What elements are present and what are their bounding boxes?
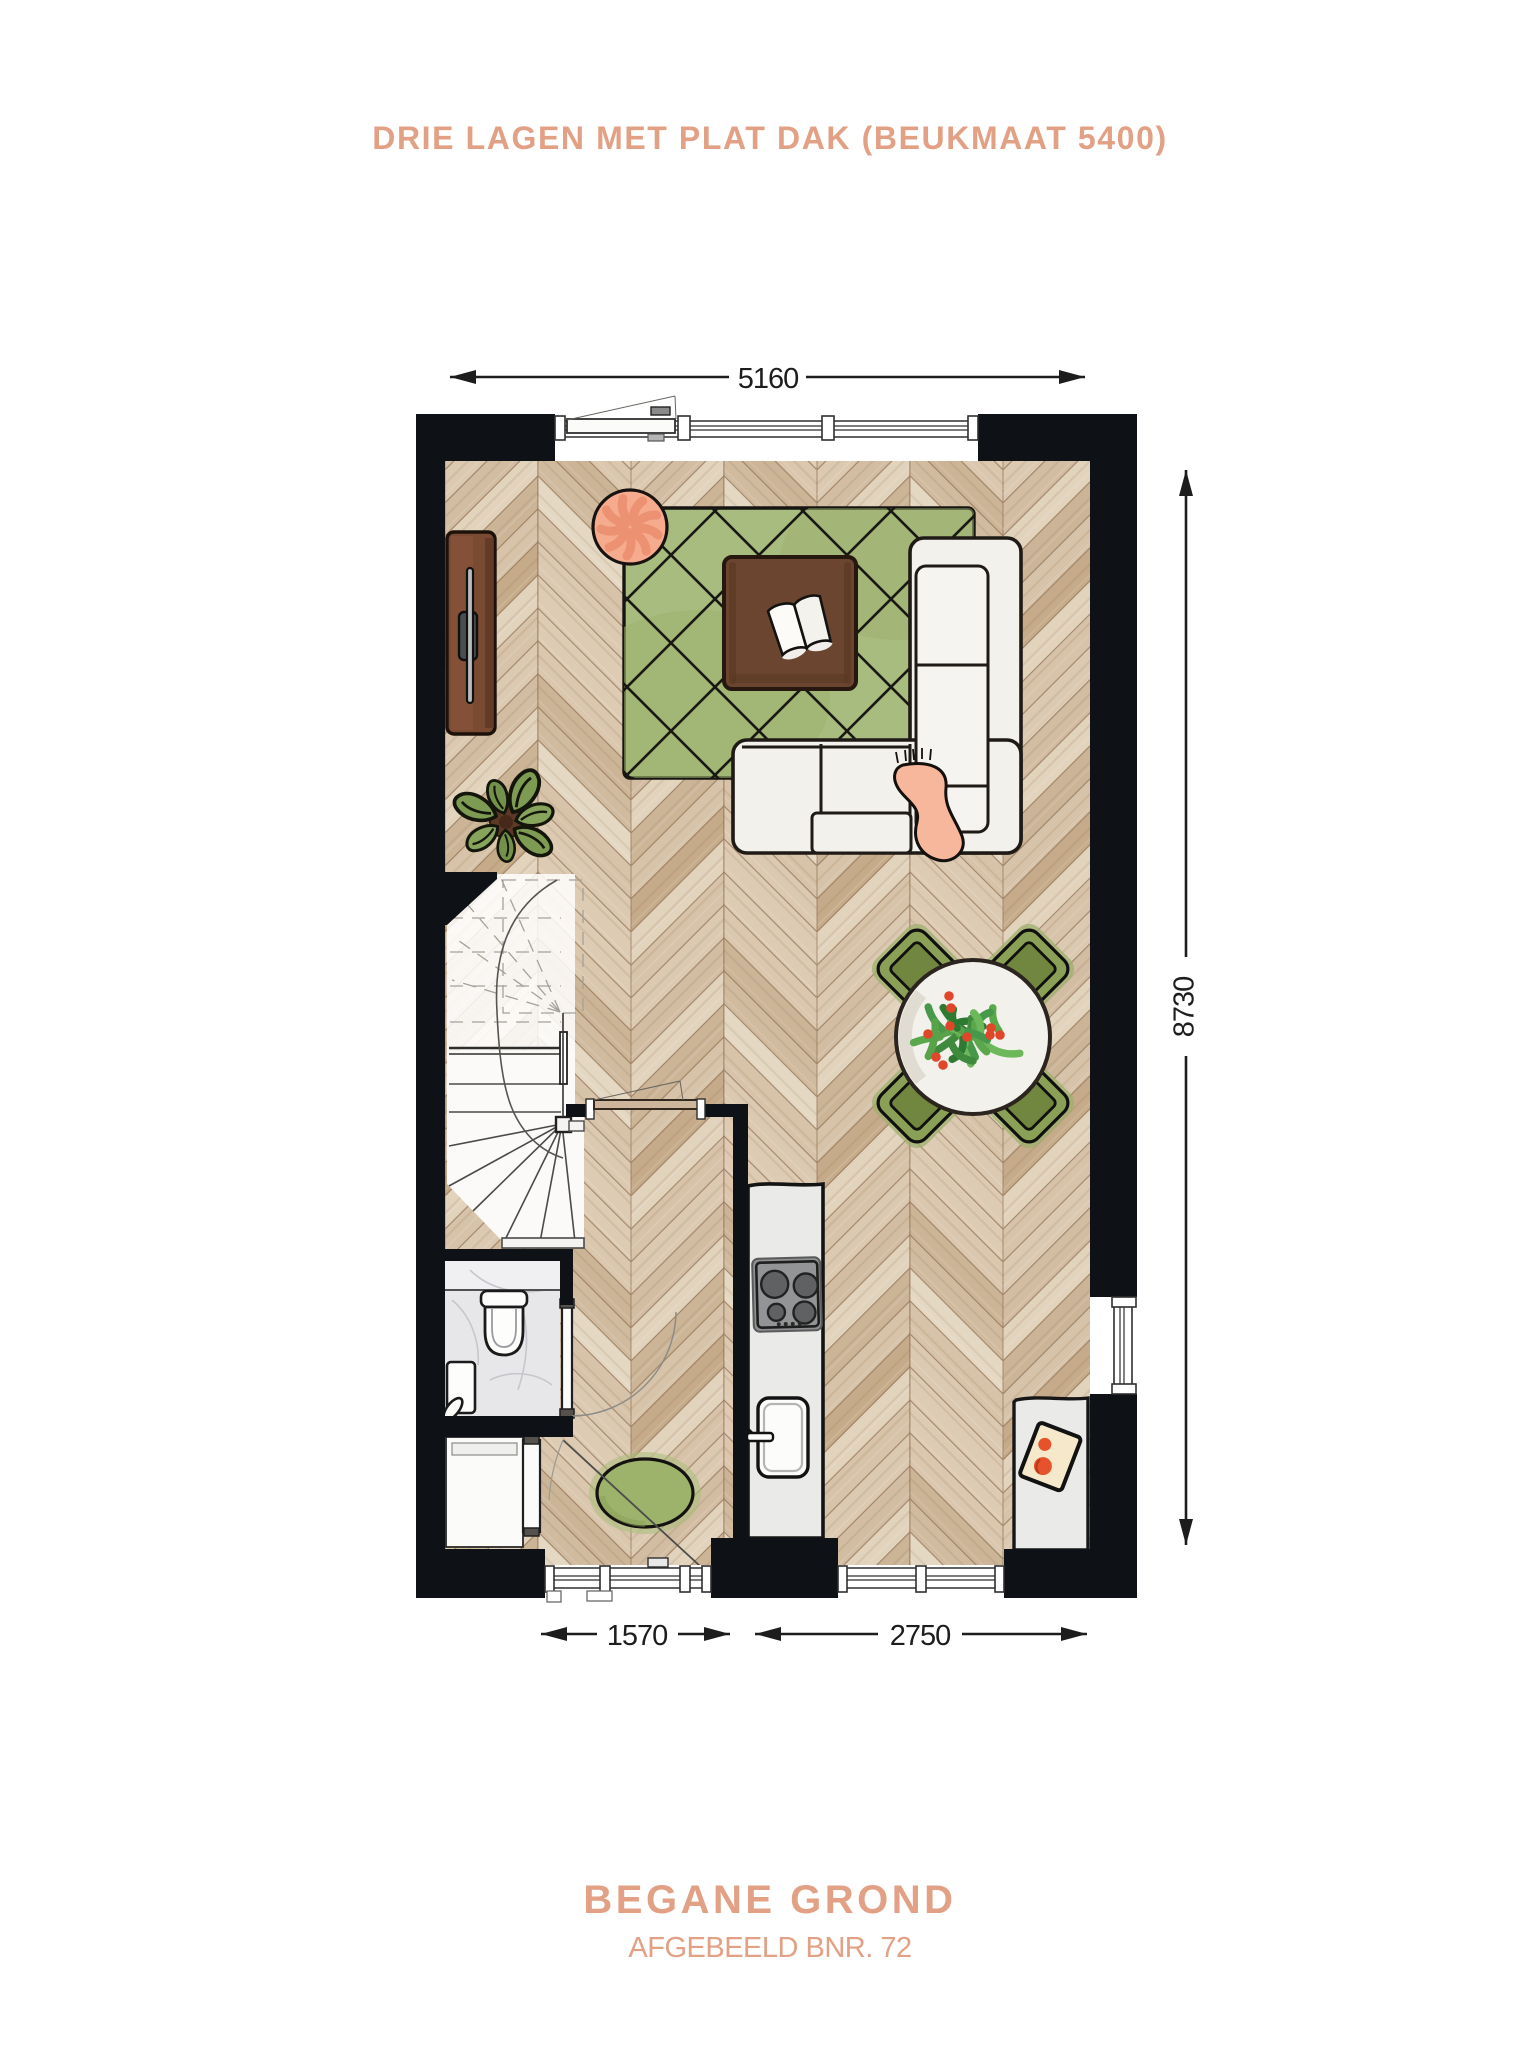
svg-text:2750: 2750 bbox=[890, 1620, 951, 1652]
svg-text:1570: 1570 bbox=[607, 1620, 668, 1652]
svg-text:AFGEBEELD BNR. 72: AFGEBEELD BNR. 72 bbox=[628, 1932, 911, 1964]
svg-text:DRIE LAGEN MET PLAT DAK (BEUKM: DRIE LAGEN MET PLAT DAK (BEUKMAAT 5400) bbox=[372, 120, 1167, 156]
svg-text:8730: 8730 bbox=[1169, 977, 1201, 1038]
svg-text:BEGANE GROND: BEGANE GROND bbox=[583, 1878, 956, 1922]
svg-text:5160: 5160 bbox=[738, 363, 799, 395]
